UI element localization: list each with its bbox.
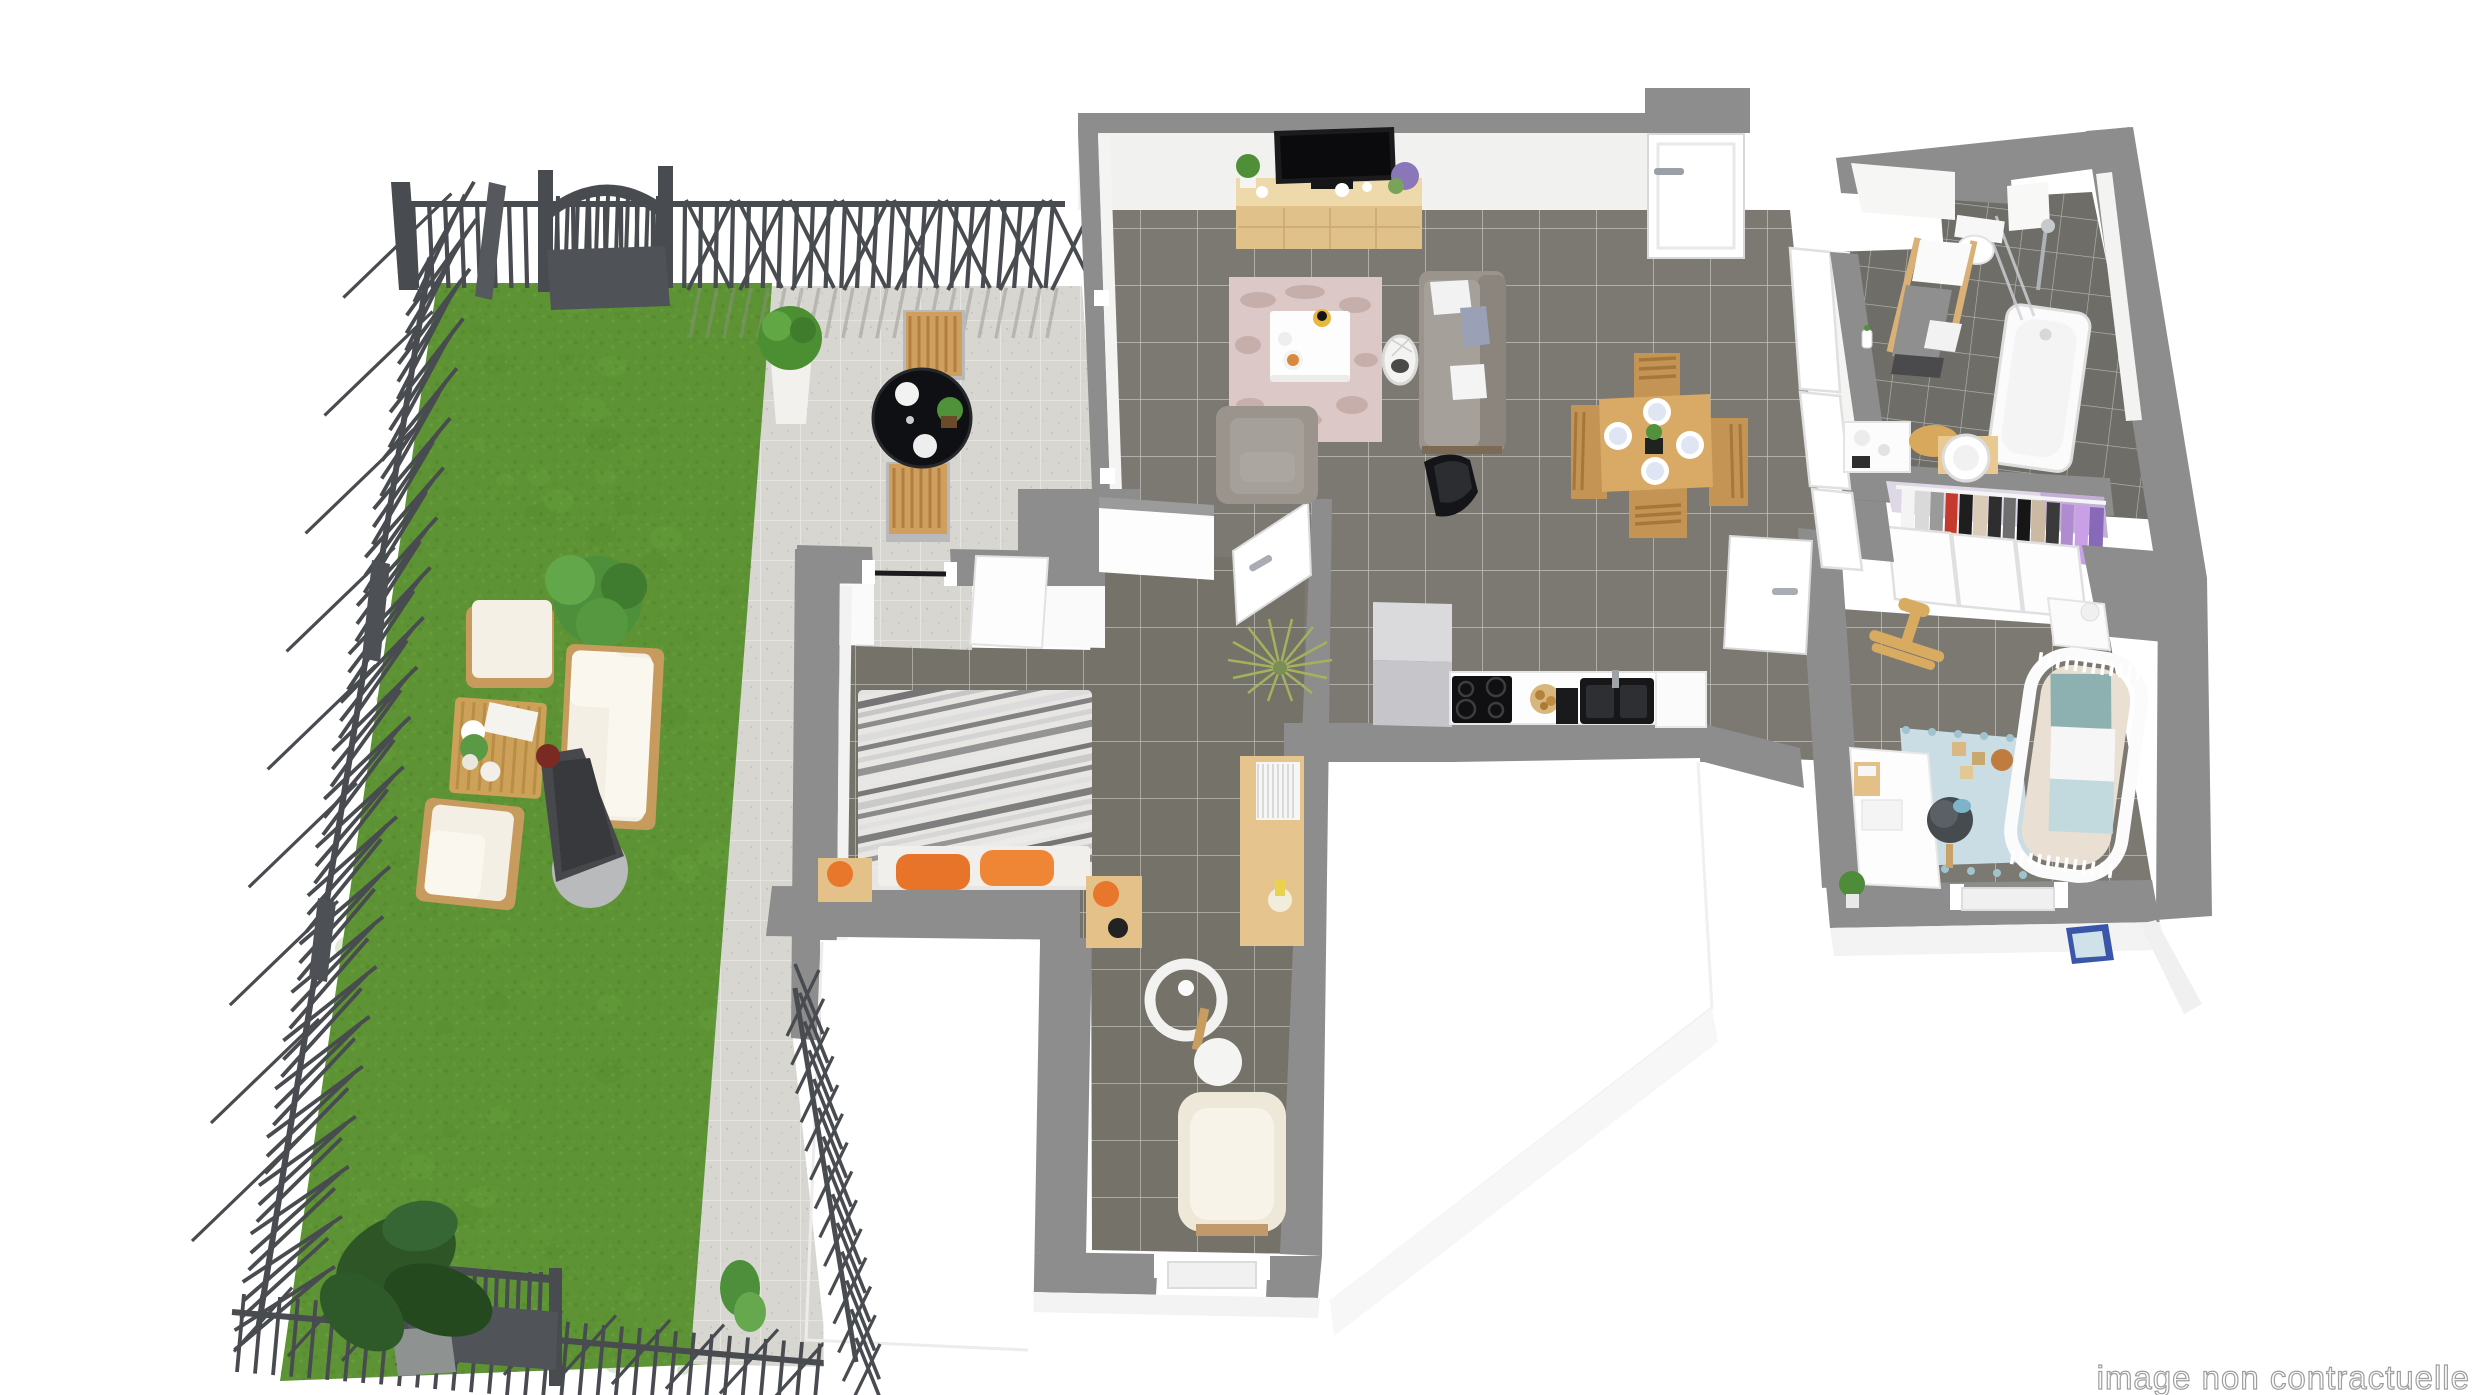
svg-text:image non contractuelle: image non contractuelle [2097,1359,2470,1395]
